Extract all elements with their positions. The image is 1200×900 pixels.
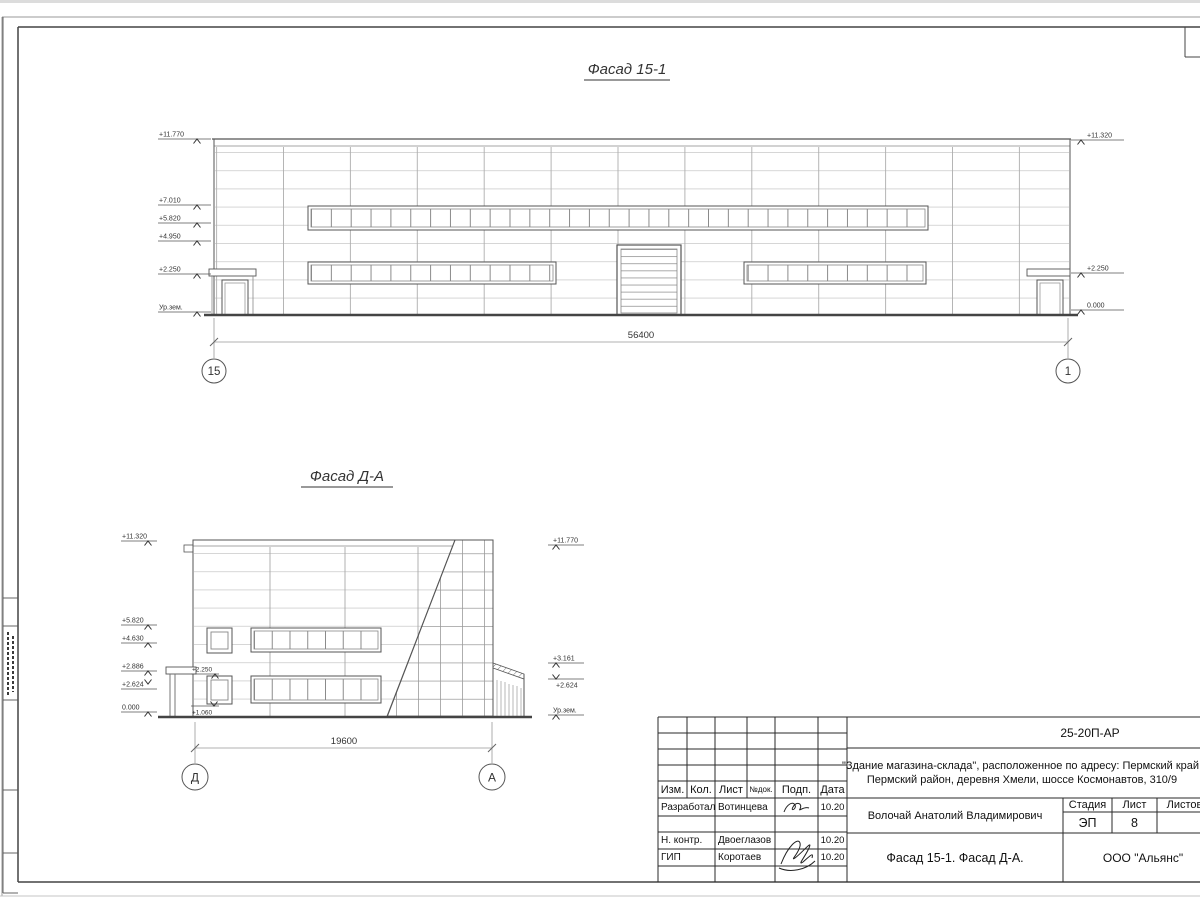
window-square-lower [207, 676, 232, 704]
axis-label: 15 [208, 366, 221, 378]
project-line-1: "Здание магазина-склада", расположенное … [842, 759, 1200, 773]
elevation-flag-icon [553, 675, 560, 680]
elevation-flag-icon [145, 671, 152, 676]
elevation-flag-icon [145, 643, 152, 648]
rev-header-list: Лист [715, 781, 747, 798]
facade-d-a-drawing [158, 540, 532, 717]
canopy [209, 269, 256, 276]
stage-value: ЭП [1063, 812, 1112, 833]
elevation-flag-icon [145, 680, 152, 685]
elevation-mark: +5.820 [122, 618, 144, 625]
rev-header-data: Дата [818, 781, 847, 798]
facade-15-1-drawing [204, 139, 1078, 315]
elevation-mark: +11.320 [122, 534, 147, 541]
elevation-flag-icon [194, 241, 201, 246]
facade2-marks-right: +11.770 +3.161 +2.624 Ур.зем. [548, 538, 584, 720]
facade1-title: Фасад 15-1 [584, 61, 670, 80]
rev-header-izm: Изм. [658, 781, 687, 798]
elevation-mark: +5.820 [159, 216, 181, 223]
elevation-mark: +11.320 [1087, 133, 1112, 140]
left-stamp-strip [3, 17, 18, 893]
rev-header-podp: Подп. [775, 781, 818, 798]
elevation-mark: Ур.зем. [159, 305, 183, 312]
axis-label: 1 [1065, 366, 1071, 378]
dimension-value: 56400 [628, 330, 654, 341]
sign-date-0: 10.20 [818, 798, 847, 816]
top-right-stamp-box [1185, 27, 1200, 57]
sign-role-1: Н. контр. [661, 832, 714, 849]
facade1-title-text: Фасад 15-1 [588, 61, 667, 78]
facade2-marks-left: +11.320 +5.820 +4.630 +2.886 +2.624 0.00… [121, 534, 157, 717]
elevation-flag-icon [553, 545, 560, 550]
sign-date-1: 10.20 [818, 832, 847, 849]
elevation-flag-icon [194, 205, 201, 210]
project-line-2: Пермский район, деревня Хмели, шоссе Кос… [867, 773, 1177, 787]
axis-label: Д [191, 771, 199, 785]
window-strip-lower-right [744, 262, 926, 284]
elevation-mark: 0.000 [122, 705, 140, 712]
elevation-mark: +1.060 [192, 710, 212, 717]
facade1-dimension: 56400 15 1 [202, 318, 1080, 383]
facade2-title: Фасад Д-А [301, 468, 393, 487]
window-strip-upper [251, 628, 381, 652]
elevation-mark: +11.770 [553, 538, 578, 545]
sectional-gate [617, 245, 681, 315]
sign-name-1: Двоеглазов [718, 832, 774, 849]
dimension-value: 19600 [331, 736, 357, 747]
elevation-flag-icon [194, 223, 201, 228]
sign-role-2: ГИП [661, 849, 714, 866]
elevation-flag-icon [194, 312, 201, 317]
elevation-mark: +11.770 [159, 132, 184, 139]
elevation-flag-icon [1078, 310, 1085, 315]
stage-header: Стадия [1063, 798, 1112, 812]
elevation-mark: +7.010 [159, 198, 181, 205]
annex-roof [493, 663, 524, 679]
window-square-upper [207, 628, 232, 653]
elevation-flag-icon [194, 274, 201, 279]
elevation-mark: +4.950 [159, 234, 181, 241]
elevation-mark: +4.630 [122, 636, 144, 643]
sheets-header: Листов [1157, 798, 1200, 812]
facade2-title-text: Фасад Д-А [310, 468, 384, 485]
customer-name: Волочай Анатолий Владимирович [849, 799, 1061, 832]
axis-label: А [488, 771, 496, 785]
rev-header-ndok: №док. [747, 781, 775, 798]
elevation-flag-icon [553, 663, 560, 668]
sheet-number: 8 [1112, 812, 1157, 833]
window-strip-lower-left [308, 262, 556, 284]
sign-role-0: Разработал [661, 798, 714, 816]
document-code: 25-20П-АР [1040, 718, 1140, 747]
sign-name-0: Вотинцева [718, 798, 774, 816]
company-name: ООО "Альянс" [1063, 834, 1200, 881]
signatures [779, 803, 815, 870]
project-description: "Здание магазина-склада", расположенное … [849, 749, 1195, 797]
elevation-flag-icon [1078, 273, 1085, 278]
elevation-mark: +2.250 [159, 267, 181, 274]
sign-name-2: Коротаев [718, 849, 774, 866]
facade1-marks-right: +11.320 +2.250 0.000 [1071, 133, 1124, 315]
window-strip-lower [251, 676, 381, 703]
facade1-marks-left: +11.770 +7.010 +5.820 +4.950 +2.250 Ур.з… [158, 132, 211, 317]
elevation-mark: +2.886 [122, 664, 144, 671]
sign-date-2: 10.20 [818, 849, 847, 866]
elevation-mark: +2.250 [192, 667, 212, 674]
drawing-title: Фасад 15-1. Фасад Д-А. [849, 834, 1061, 881]
canopy [1027, 269, 1070, 276]
elevation-mark: 0.000 [1087, 303, 1105, 310]
elevation-mark: +2.250 [1087, 266, 1109, 273]
rev-header-kol: Кол. [687, 781, 715, 798]
elevation-flag-icon [553, 715, 560, 720]
signature-votintseva [784, 803, 809, 812]
parapet-tab [184, 545, 193, 552]
elevation-flag-icon [1078, 140, 1085, 145]
drawing-sheet: Фасад 15-1 +11.770 +7.010 +5.820 +4.950 … [0, 0, 1200, 900]
facade2-dimension: 19600 Д А [182, 722, 505, 790]
elevation-mark: +2.624 [122, 682, 144, 689]
window-strip-upper [308, 206, 928, 230]
elevation-flag-icon [145, 712, 152, 717]
sheet-header: Лист [1112, 798, 1157, 812]
elevation-mark: +2.624 [556, 683, 578, 690]
elevation-flag-icon [145, 625, 152, 630]
annex-right [493, 663, 524, 717]
elevation-flag-icon [145, 541, 152, 546]
elevation-mark: +3.161 [553, 656, 575, 663]
elevation-mark: Ур.зем. [553, 708, 577, 715]
elevation-flag-icon [194, 139, 201, 144]
